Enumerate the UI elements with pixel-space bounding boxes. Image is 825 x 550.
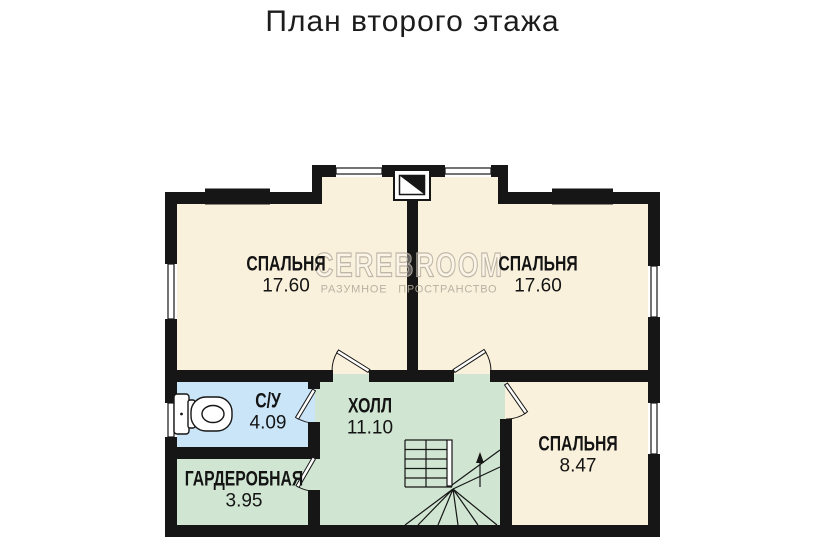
room-bedroom-bottom-right-fill bbox=[505, 374, 655, 528]
chimney-icon bbox=[394, 170, 430, 200]
window-icon bbox=[648, 400, 660, 457]
room-wardrobe-fill bbox=[172, 453, 317, 528]
floor-plan bbox=[0, 0, 825, 550]
window-icon bbox=[165, 261, 177, 322]
window-icon bbox=[333, 165, 385, 177]
window-icon bbox=[442, 165, 494, 177]
floor-plan-page: План второго этажа bbox=[0, 0, 825, 550]
toilet-icon bbox=[174, 394, 232, 434]
room-hall-fill bbox=[315, 374, 507, 528]
room-bedroom-top-right-fill bbox=[415, 174, 655, 376]
window-icon bbox=[648, 263, 660, 320]
